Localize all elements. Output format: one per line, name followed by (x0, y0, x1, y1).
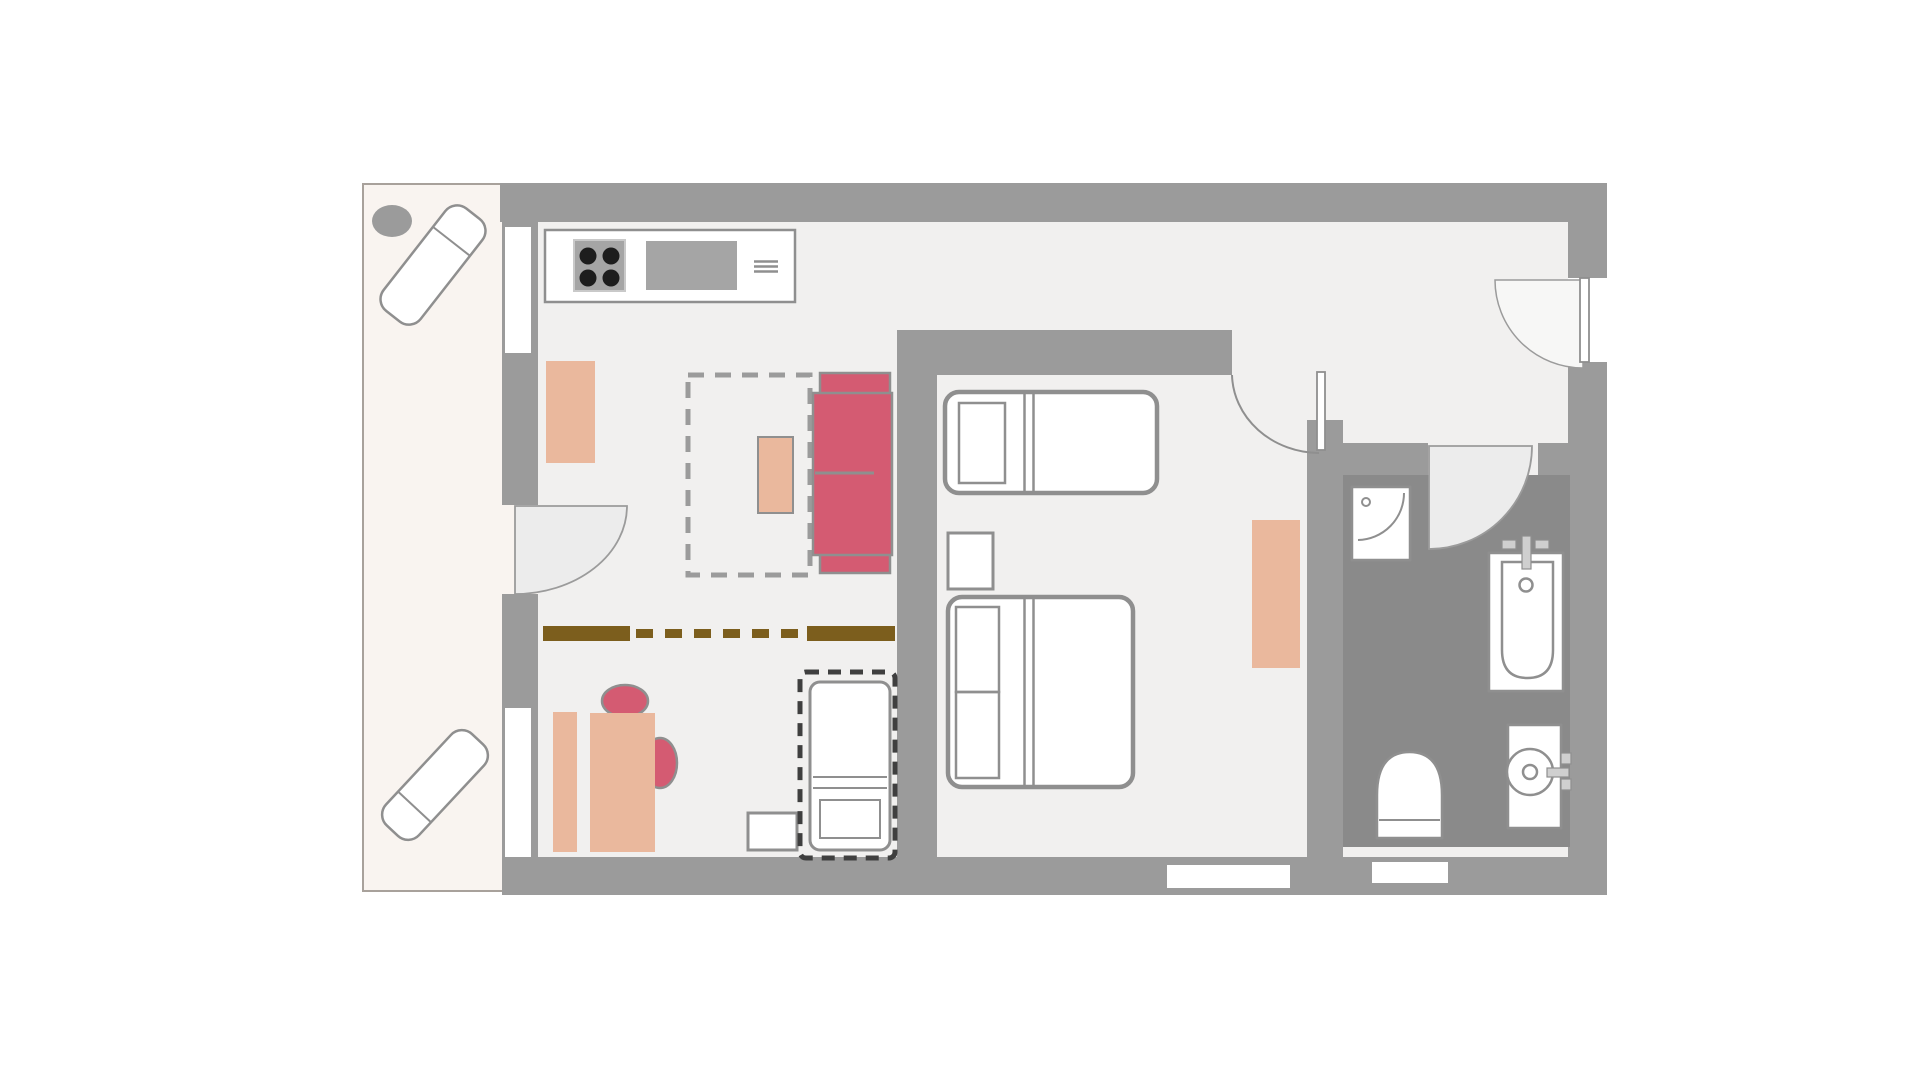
bathtub-handle-right (1535, 540, 1549, 549)
wall-bedroom-top (897, 330, 1232, 375)
entrance-door-leaf (1580, 278, 1589, 362)
sink-handle-top (1561, 753, 1571, 764)
sink-faucet (1547, 768, 1569, 777)
burner-icon (603, 270, 620, 287)
wall-top (500, 183, 1607, 222)
window-bottom-bathroom (1372, 862, 1448, 883)
single-bed-frame (945, 392, 1157, 493)
window-left-lower (505, 708, 531, 857)
bathtub (1489, 536, 1563, 691)
toilet-bowl (1377, 752, 1442, 838)
wall-right-upper (1568, 222, 1607, 278)
sofa-cushion-top (820, 373, 890, 394)
bedroom-door-leaf (1317, 372, 1325, 450)
window-bottom-bedroom (1167, 865, 1290, 888)
shower (1352, 487, 1410, 560)
sofa-cushion-bottom (820, 554, 890, 573)
sink-handle-bottom (1561, 779, 1571, 790)
wall-bedroom-left (897, 330, 937, 857)
side-cabinet-small (748, 813, 797, 850)
dining-bench (553, 712, 577, 852)
sofa (813, 373, 892, 573)
floor-plan-canvas (0, 0, 1920, 1080)
shower-tray (1352, 487, 1410, 560)
burner-icon (580, 270, 597, 287)
sink-basin (1507, 749, 1553, 795)
divider-panel-left (543, 626, 630, 641)
window-left-upper (505, 227, 531, 353)
burner-icon (580, 248, 597, 265)
kitchen-sink (646, 241, 737, 290)
single-bed (945, 392, 1157, 493)
sideboard (546, 361, 595, 463)
burner-icon (603, 248, 620, 265)
tv-cabinet (810, 682, 890, 850)
bathroom-sink (1507, 725, 1571, 828)
wall-right-lower (1568, 362, 1607, 895)
nightstand (948, 533, 993, 589)
divider-panel-right (807, 626, 895, 641)
balcony-table (372, 205, 412, 237)
dining-chair-top (602, 685, 648, 717)
bedroom-rug (1252, 520, 1300, 668)
tv-cabinet-frame (810, 682, 890, 850)
dining-table (590, 713, 655, 852)
floor-plan-svg (0, 0, 1920, 1080)
wall-bathroom-top-left (1343, 443, 1428, 475)
coffee-table (758, 437, 793, 513)
wall-bedroom-bathroom (1307, 420, 1343, 857)
double-bed (948, 597, 1133, 787)
bathtub-handle-left (1502, 540, 1516, 549)
toilet (1377, 752, 1442, 838)
bathtub-faucet (1522, 536, 1531, 569)
